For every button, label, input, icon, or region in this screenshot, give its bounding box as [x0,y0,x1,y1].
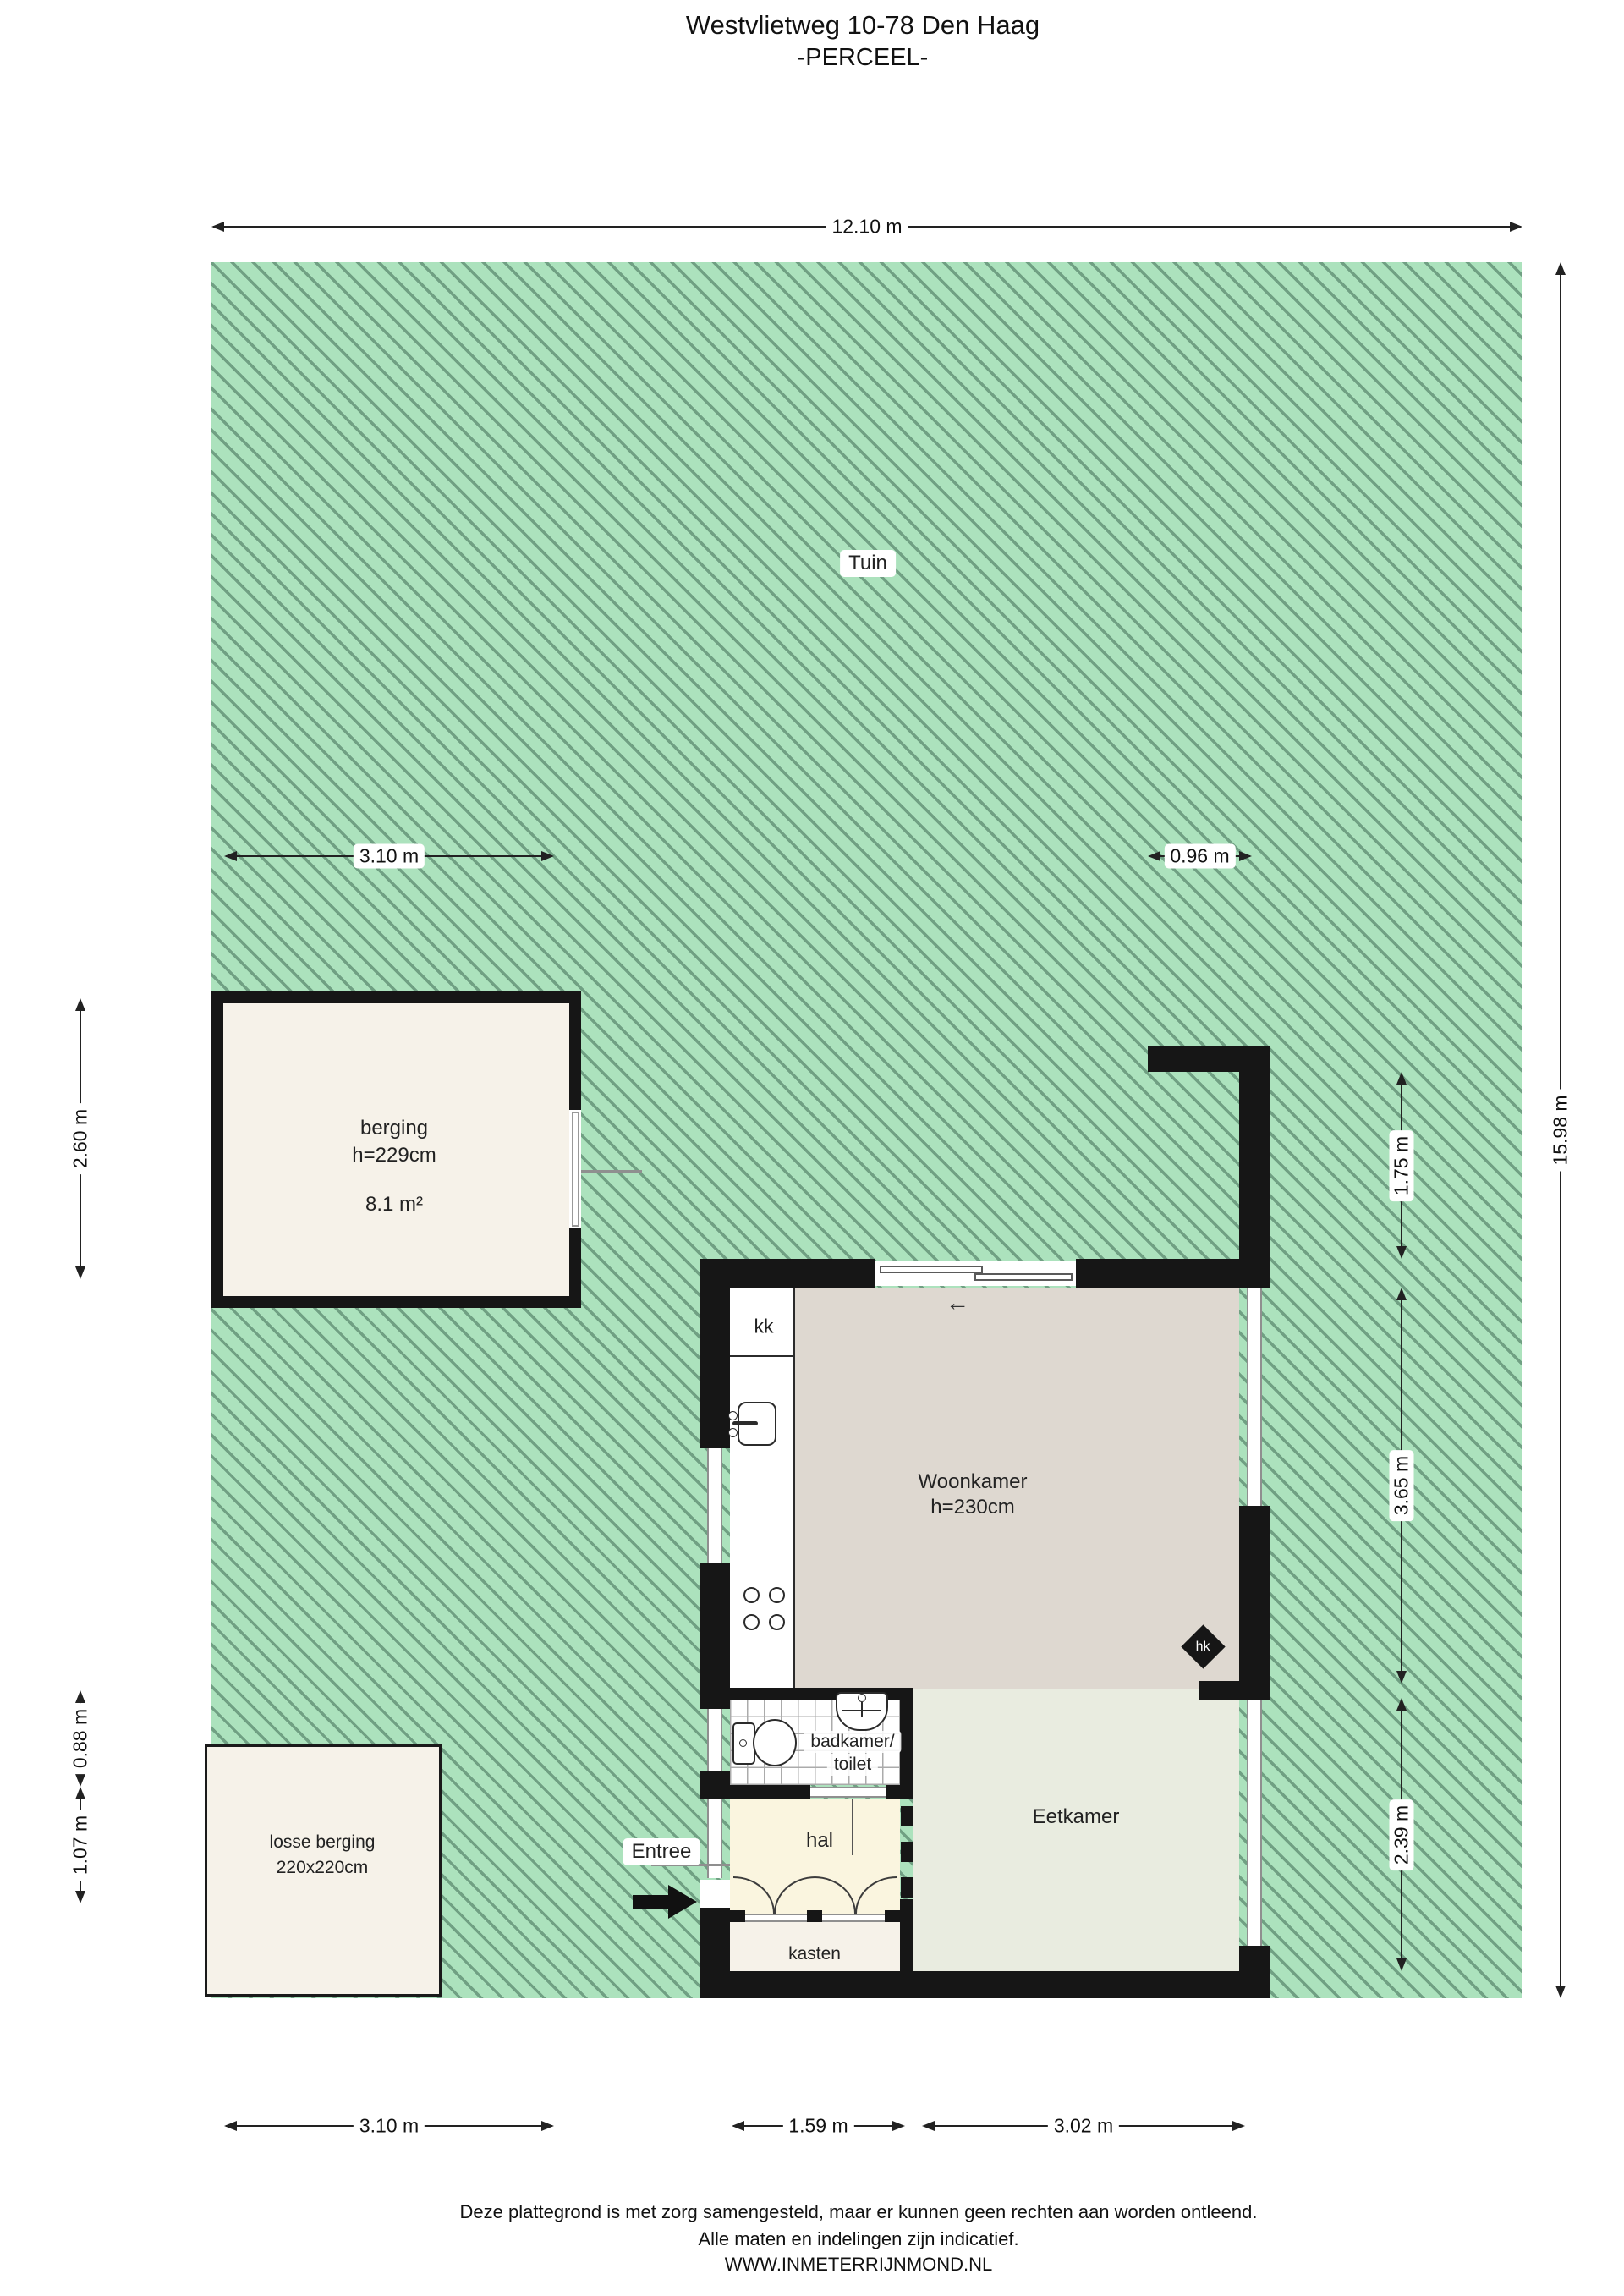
arrowhead-right-icon [1232,2121,1245,2131]
dim-label: 0.96 m [1164,844,1235,869]
dim-berging-height: 2.60 m [74,998,86,1279]
toilet-bowl [753,1719,797,1766]
dim-wall-segment: 1.75 m [1396,1072,1407,1259]
dim-bottom-left: 3.10 m [224,2120,554,2132]
dim-left-upper: 0.88 m [74,1690,86,1787]
dim-label: 3.65 m [1390,1450,1414,1521]
arrowhead-up-icon [1396,1288,1407,1300]
dim-label: 12.10 m [826,215,908,239]
hob-burner-4 [769,1614,785,1630]
window-right-woonkamer [1247,1288,1262,1506]
bathroom-sink-tap-stem [861,1702,863,1717]
wall-badkamer-right [900,1688,913,1799]
arrowhead-up-icon [1396,1698,1407,1711]
berging-ceiling-label: h=229cm [352,1144,436,1167]
arrowhead-up-icon [1396,1072,1407,1085]
eetkamer-label: Eetkamer [1033,1805,1120,1829]
footer-website: WWW.INMETERRIJNMOND.NL [351,2254,1366,2276]
dim-left-lower: 1.07 m [74,1787,86,1903]
arrowhead-down-icon [1396,1958,1407,1971]
badkamer-door-leaf [852,1799,853,1855]
kasten-post-left [730,1910,745,1922]
dim-plot-width: 12.10 m [211,221,1522,233]
toilet-button [739,1739,747,1747]
badkamer-label-line1: badkamer/ [804,1731,901,1753]
dim-woonkamer-side: 3.65 m [1396,1288,1407,1684]
badkamer-door-opening [810,1787,886,1798]
dim-label: 1.59 m [782,2114,853,2139]
kitchen-counter-divider [730,1355,795,1357]
arrowhead-right-icon [1239,851,1252,861]
sliding-door-panel-left [880,1266,983,1273]
hal-eetkamer-open-passage [901,1806,913,1899]
badkamer-label-line2: toilet [827,1754,878,1776]
arrowhead-left-icon [224,851,237,861]
kasten-post-right [885,1910,900,1922]
window-left-badkamer [707,1709,722,1771]
arrowhead-down-icon [1396,1246,1407,1259]
hk-label: hk [1196,1640,1210,1655]
arrowhead-left-icon [732,2121,744,2131]
arrowhead-up-icon [75,1690,85,1703]
arrowhead-right-icon [541,2121,554,2131]
arrowhead-down-icon [75,1774,85,1787]
arrowhead-right-icon [1510,222,1522,232]
berging-door-leaf [572,1112,579,1227]
kitchen-counter-edge [793,1288,795,1688]
berging-label: berging [360,1117,428,1140]
wall-left-a [700,1259,730,1448]
dim-label: 2.60 m [69,1103,93,1174]
kasten-post-middle [807,1910,822,1922]
garden-label: Tuin [840,550,896,577]
sliding-door-arrow-icon: ← [946,1289,969,1316]
arrowhead-down-icon [1555,1986,1566,1998]
dim-right-gap: 0.96 m [1148,850,1252,862]
arrowhead-right-icon [892,2121,905,2131]
kitchen-label: kk [754,1316,774,1338]
arrowhead-down-icon [75,1891,85,1903]
wall-badkamer-bottom-right [886,1785,913,1799]
window-left-woonkamer [707,1448,722,1563]
arrowhead-left-icon [922,2121,935,2131]
arrowhead-down-icon [75,1266,85,1279]
dim-label: 15.98 m [1549,1089,1573,1171]
arrowhead-up-icon [75,1787,85,1799]
arrowhead-down-icon [1396,1671,1407,1684]
arrowhead-left-icon [211,222,224,232]
berging-door-swing-line [581,1170,642,1173]
arrowhead-left-icon [1148,851,1160,861]
dim-label: 3.10 m [354,2114,425,2139]
dim-eetkamer-side: 2.39 m [1396,1698,1407,1971]
window-left-hal [707,1799,722,1878]
wall-badkamer-bottom-left [730,1785,810,1799]
arrowhead-left-icon [224,2121,237,2131]
losse-berging-label: losse berging [270,1832,376,1853]
dim-bottom-hal: 1.59 m [732,2120,905,2132]
wall-left-c [700,1771,730,1799]
arrowhead-up-icon [1555,262,1566,275]
entree-door-opening [700,1880,730,1908]
arrowhead-right-icon [541,851,554,861]
wall-garden-stub [1148,1046,1270,1072]
wall-right-upper-extension [1239,1046,1270,1288]
kitchen-faucet-spout [732,1421,758,1425]
eetkamer-floor [913,1689,1239,1971]
hal-label: hal [806,1829,833,1853]
kitchen-faucet-knob-bottom [728,1428,738,1437]
kitchen-counter-floor [730,1288,795,1688]
footer-disclaimer-line2: Alle maten en indelingen zijn indicatief… [351,2228,1366,2250]
window-right-eetkamer [1247,1700,1262,1946]
dim-label: 3.02 m [1048,2114,1119,2139]
dim-bottom-eetkamer: 3.02 m [922,2120,1245,2132]
page-subtitle: -PERCEEL- [440,44,1286,72]
wall-right-mid [1239,1506,1270,1700]
dim-label: 1.07 m [69,1810,93,1881]
hob-burner-3 [743,1614,760,1630]
bathroom-sink-tap [858,1694,866,1702]
kitchen-faucet-knob-top [728,1411,738,1420]
dim-plot-height: 15.98 m [1555,262,1566,1998]
entree-arrow-head [668,1885,697,1919]
dim-label: 0.88 m [69,1703,93,1774]
dim-label: 3.10 m [354,844,425,869]
woonkamer-ceiling-label: h=230cm [930,1496,1014,1519]
hob-burner-1 [743,1587,760,1603]
kasten-label: kasten [788,1944,841,1964]
wall-stub-woonkamer-eetkamer [1199,1681,1239,1700]
entree-arrow-shaft [633,1895,668,1909]
entree-label: Entree [623,1838,700,1865]
dim-label: 2.39 m [1390,1799,1414,1870]
hob-burner-2 [769,1587,785,1603]
dim-berging-width: 3.10 m [224,850,554,862]
berging-area-label: 8.1 m² [365,1193,423,1217]
woonkamer-label: Woonkamer [919,1470,1028,1494]
wall-bottom [700,1971,1270,1998]
footer-disclaimer-line1: Deze plattegrond is met zorg samengestel… [351,2201,1366,2223]
dim-label: 1.75 m [1390,1129,1414,1200]
arrowhead-up-icon [75,998,85,1011]
wall-left-b [700,1563,730,1709]
page-title: Westvlietweg 10-78 Den Haag [440,10,1286,41]
entree-arrow-icon [633,1885,699,1919]
sliding-door-panel-right [974,1273,1073,1281]
losse-berging-size-label: 220x220cm [277,1858,369,1878]
wall-kasten-right [900,1899,913,1971]
